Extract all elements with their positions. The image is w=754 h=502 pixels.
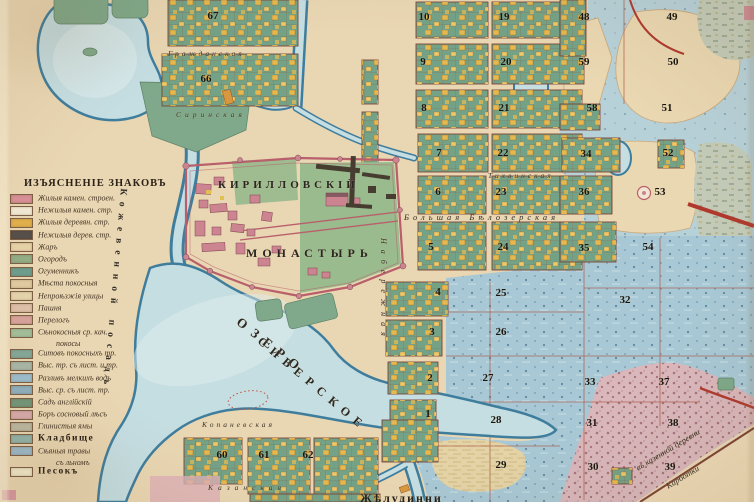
legend-item: Сѣяныя травы xyxy=(10,446,162,457)
legend-item: Пашня xyxy=(10,303,162,314)
legend-item: Жилыя деревян. стр. xyxy=(10,217,162,228)
block-number: 48 xyxy=(579,11,590,23)
block-number: 38 xyxy=(668,417,679,429)
legend-item: Жилыя камен. строен. xyxy=(10,193,162,204)
block-number: 39 xyxy=(665,461,676,473)
block-number: 6 xyxy=(435,186,441,198)
block-number: 53 xyxy=(655,186,666,198)
city-block xyxy=(168,0,298,46)
legend-swatch xyxy=(10,410,33,420)
city-block xyxy=(362,112,378,164)
antique-town-plan-map: ИЗЪЯСНЕНІЕ ЗНАКОВЪ Жилыя камен. строен.Н… xyxy=(0,0,754,502)
legend-swatch xyxy=(10,279,33,289)
city-block xyxy=(314,438,378,496)
legend-item: Ситовъ покосныхъ тр. xyxy=(10,348,162,359)
legend-label: Пашня xyxy=(38,303,62,312)
legend-label: Кладбище xyxy=(38,434,94,444)
legend-swatch xyxy=(10,349,33,359)
block-number: 54 xyxy=(643,241,654,253)
legend-label: Жаръ xyxy=(38,242,57,251)
street-grazhdanskaya: Гражданская xyxy=(168,49,245,58)
block-number: 33 xyxy=(585,376,596,388)
block-number: 10 xyxy=(419,11,430,23)
legend-label: Перелогъ xyxy=(38,315,70,324)
legend-swatch xyxy=(10,230,33,240)
legend-swatch xyxy=(10,361,33,371)
legend-item: Глинистыя ямы xyxy=(10,421,162,432)
legend-item: Нежилыя дерев. стр. xyxy=(10,230,162,241)
legend-item: Жаръ xyxy=(10,242,162,253)
block-number: 24 xyxy=(498,241,509,253)
legend-label: Выс. тр. съ лист. и тр. xyxy=(38,361,118,370)
legend-swatch xyxy=(10,328,33,338)
block-number: 62 xyxy=(303,449,314,461)
street-tikhvinskaya: Тихвинская xyxy=(488,171,554,180)
legend-label: Жилыя камен. строен. xyxy=(38,194,115,203)
legend-swatch xyxy=(10,373,33,383)
legend-sublabel: съ льномъ xyxy=(56,458,162,467)
block-number: 61 xyxy=(259,449,270,461)
legend-swatch xyxy=(10,467,33,477)
legend-swatch xyxy=(10,291,33,301)
legend-swatch xyxy=(10,218,33,228)
block-number: 9 xyxy=(420,56,426,68)
legend-item: Мѣста покосныя xyxy=(10,278,162,289)
legend-label: Ситовъ покосныхъ тр. xyxy=(38,349,116,358)
monastery-name-line2: МОНАСТЫРЬ xyxy=(246,246,373,261)
legend-swatch xyxy=(10,303,33,313)
block-number: 49 xyxy=(667,11,678,23)
monastery-name-line1: КИРИЛЛОВСКІЙ xyxy=(218,179,359,191)
city-block xyxy=(560,0,586,56)
block-number: 21 xyxy=(499,102,510,114)
block-number: 29 xyxy=(496,459,507,471)
block-number: 19 xyxy=(499,11,510,23)
street-kopanevskaya: Копаневская xyxy=(202,420,275,429)
block-number: 31 xyxy=(587,417,598,429)
legend-label: Боръ сосновый лѣсъ xyxy=(38,410,107,419)
legend-swatch xyxy=(10,398,33,408)
block-number: 23 xyxy=(496,186,507,198)
legend-item: Песокъ xyxy=(10,467,162,478)
legend-item: Перелогъ xyxy=(10,315,162,326)
block-number: 3 xyxy=(429,326,435,338)
city-block xyxy=(418,134,488,172)
block-number: 28 xyxy=(491,414,502,426)
block-number: 35 xyxy=(579,242,590,254)
block-number: 59 xyxy=(579,56,590,68)
legend-item: Боръ сосновый лѣсъ xyxy=(10,409,162,420)
block-number: 7 xyxy=(436,147,442,159)
block-number: 34 xyxy=(581,148,592,160)
legend-swatch xyxy=(10,254,33,264)
block-number: 8 xyxy=(421,102,427,114)
legend-item: Выс. тр. съ лист. и тр. xyxy=(10,360,162,371)
legend-label: Песокъ xyxy=(38,467,79,477)
city-block xyxy=(362,60,378,104)
block-number: 66 xyxy=(201,73,212,85)
block-number: 30 xyxy=(588,461,599,473)
street-kazanskaya: Казанская xyxy=(208,483,286,492)
street-sirinskaya: Сиринская xyxy=(176,110,246,119)
legend-label: Разливъ мелкихъ водъ xyxy=(38,373,111,382)
legend-rows: Жилыя камен. строен.Нежилыя камен. стр.Ж… xyxy=(10,193,162,478)
street-naberezhnaya: Набережная xyxy=(379,238,388,342)
legend-label: Сѣнокосныя ср. кач. xyxy=(38,328,108,337)
block-number: 20 xyxy=(501,56,512,68)
block-number: 27 xyxy=(483,372,494,384)
legend-swatch xyxy=(10,385,33,395)
legend-label: Жилыя деревян. стр. xyxy=(38,218,110,227)
block-number: 60 xyxy=(217,449,228,461)
city-block xyxy=(612,468,632,484)
block-number: 32 xyxy=(620,294,631,306)
legend-swatch xyxy=(10,194,33,204)
block-number: 58 xyxy=(587,102,598,114)
legend-label: Огуменникъ xyxy=(38,267,79,276)
legend-label: Нежилыя дерев. стр. xyxy=(38,230,111,239)
legend-swatch xyxy=(10,315,33,325)
block-number: 50 xyxy=(668,56,679,68)
legend-label: Мѣста покосныя xyxy=(38,279,98,288)
street-bolshaya-belozerskaya: Большая Бѣлозерская xyxy=(404,212,559,222)
legend-swatch xyxy=(10,434,33,444)
block-number: 67 xyxy=(208,10,219,22)
legend-item: Садъ англійскій xyxy=(10,397,162,408)
legend-item: Огуменникъ xyxy=(10,266,162,277)
block-number: 26 xyxy=(496,326,507,338)
legend-swatch xyxy=(10,422,33,432)
city-block xyxy=(382,420,438,462)
legend-label: Выс. ср. съ лист. тр. xyxy=(38,385,110,394)
block-number: 22 xyxy=(498,147,509,159)
legend-label: Нежилыя камен. стр. xyxy=(38,206,113,215)
city-block xyxy=(416,44,488,84)
legend-label: Непроѣзжія улицы xyxy=(38,291,103,300)
block-number: 4 xyxy=(435,286,441,298)
block-number: 51 xyxy=(662,102,673,114)
legend-swatch xyxy=(10,242,33,252)
block-number: 1 xyxy=(425,408,431,420)
legend-swatch xyxy=(10,267,33,277)
legend-item: Непроѣзжія улицы xyxy=(10,291,162,302)
legend-swatch xyxy=(10,206,33,216)
legend-label: Садъ англійскій xyxy=(38,398,92,407)
block-number: 52 xyxy=(663,147,674,159)
legend-label: Огородъ xyxy=(38,254,67,263)
block-number: 25 xyxy=(496,287,507,299)
block-number: 37 xyxy=(659,376,670,388)
legend-label: Глинистыя ямы xyxy=(38,422,92,431)
legend-item: Сѣнокосныя ср. кач. xyxy=(10,327,162,338)
map-legend: ИЗЪЯСНЕНІЕ ЗНАКОВЪ Жилыя камен. строен.Н… xyxy=(10,178,162,479)
city-block xyxy=(418,176,486,214)
legend-swatch xyxy=(10,446,33,456)
cut-label-bottom: Жѣлудинни xyxy=(360,491,443,502)
legend-label: Сѣяныя травы xyxy=(38,446,90,455)
legend-item: Кладбище xyxy=(10,434,162,445)
legend-item: Разливъ мелкихъ водъ xyxy=(10,373,162,384)
legend-item: Выс. ср. съ лист. тр. xyxy=(10,385,162,396)
legend-title: ИЗЪЯСНЕНІЕ ЗНАКОВЪ xyxy=(24,178,162,189)
legend-sublabel: покосы xyxy=(56,339,162,348)
legend-item: Огородъ xyxy=(10,254,162,265)
block-number: 5 xyxy=(428,241,434,253)
legend-item: Нежилыя камен. стр. xyxy=(10,205,162,216)
block-number: 2 xyxy=(427,372,433,384)
block-number: 36 xyxy=(579,186,590,198)
